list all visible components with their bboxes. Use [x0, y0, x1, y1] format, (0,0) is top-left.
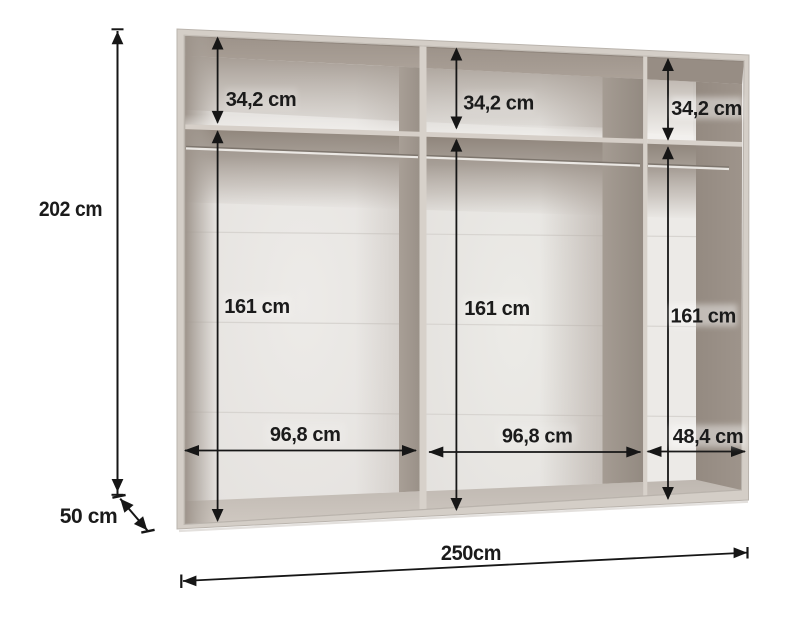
svg-text:96,8 cm: 96,8 cm: [502, 426, 573, 448]
svg-text:161 cm: 161 cm: [224, 296, 289, 318]
svg-text:50 cm: 50 cm: [60, 505, 118, 528]
svg-text:34,2 cm: 34,2 cm: [463, 92, 534, 114]
svg-text:161 cm: 161 cm: [464, 298, 529, 320]
svg-text:161 cm: 161 cm: [670, 306, 735, 328]
svg-text:34,2 cm: 34,2 cm: [226, 89, 297, 111]
svg-text:96,8 cm: 96,8 cm: [270, 424, 341, 446]
svg-text:250cm: 250cm: [441, 542, 501, 566]
svg-text:48,4 cm: 48,4 cm: [673, 426, 744, 448]
svg-text:34,2 cm: 34,2 cm: [671, 98, 742, 120]
svg-text:202 cm: 202 cm: [39, 199, 102, 222]
